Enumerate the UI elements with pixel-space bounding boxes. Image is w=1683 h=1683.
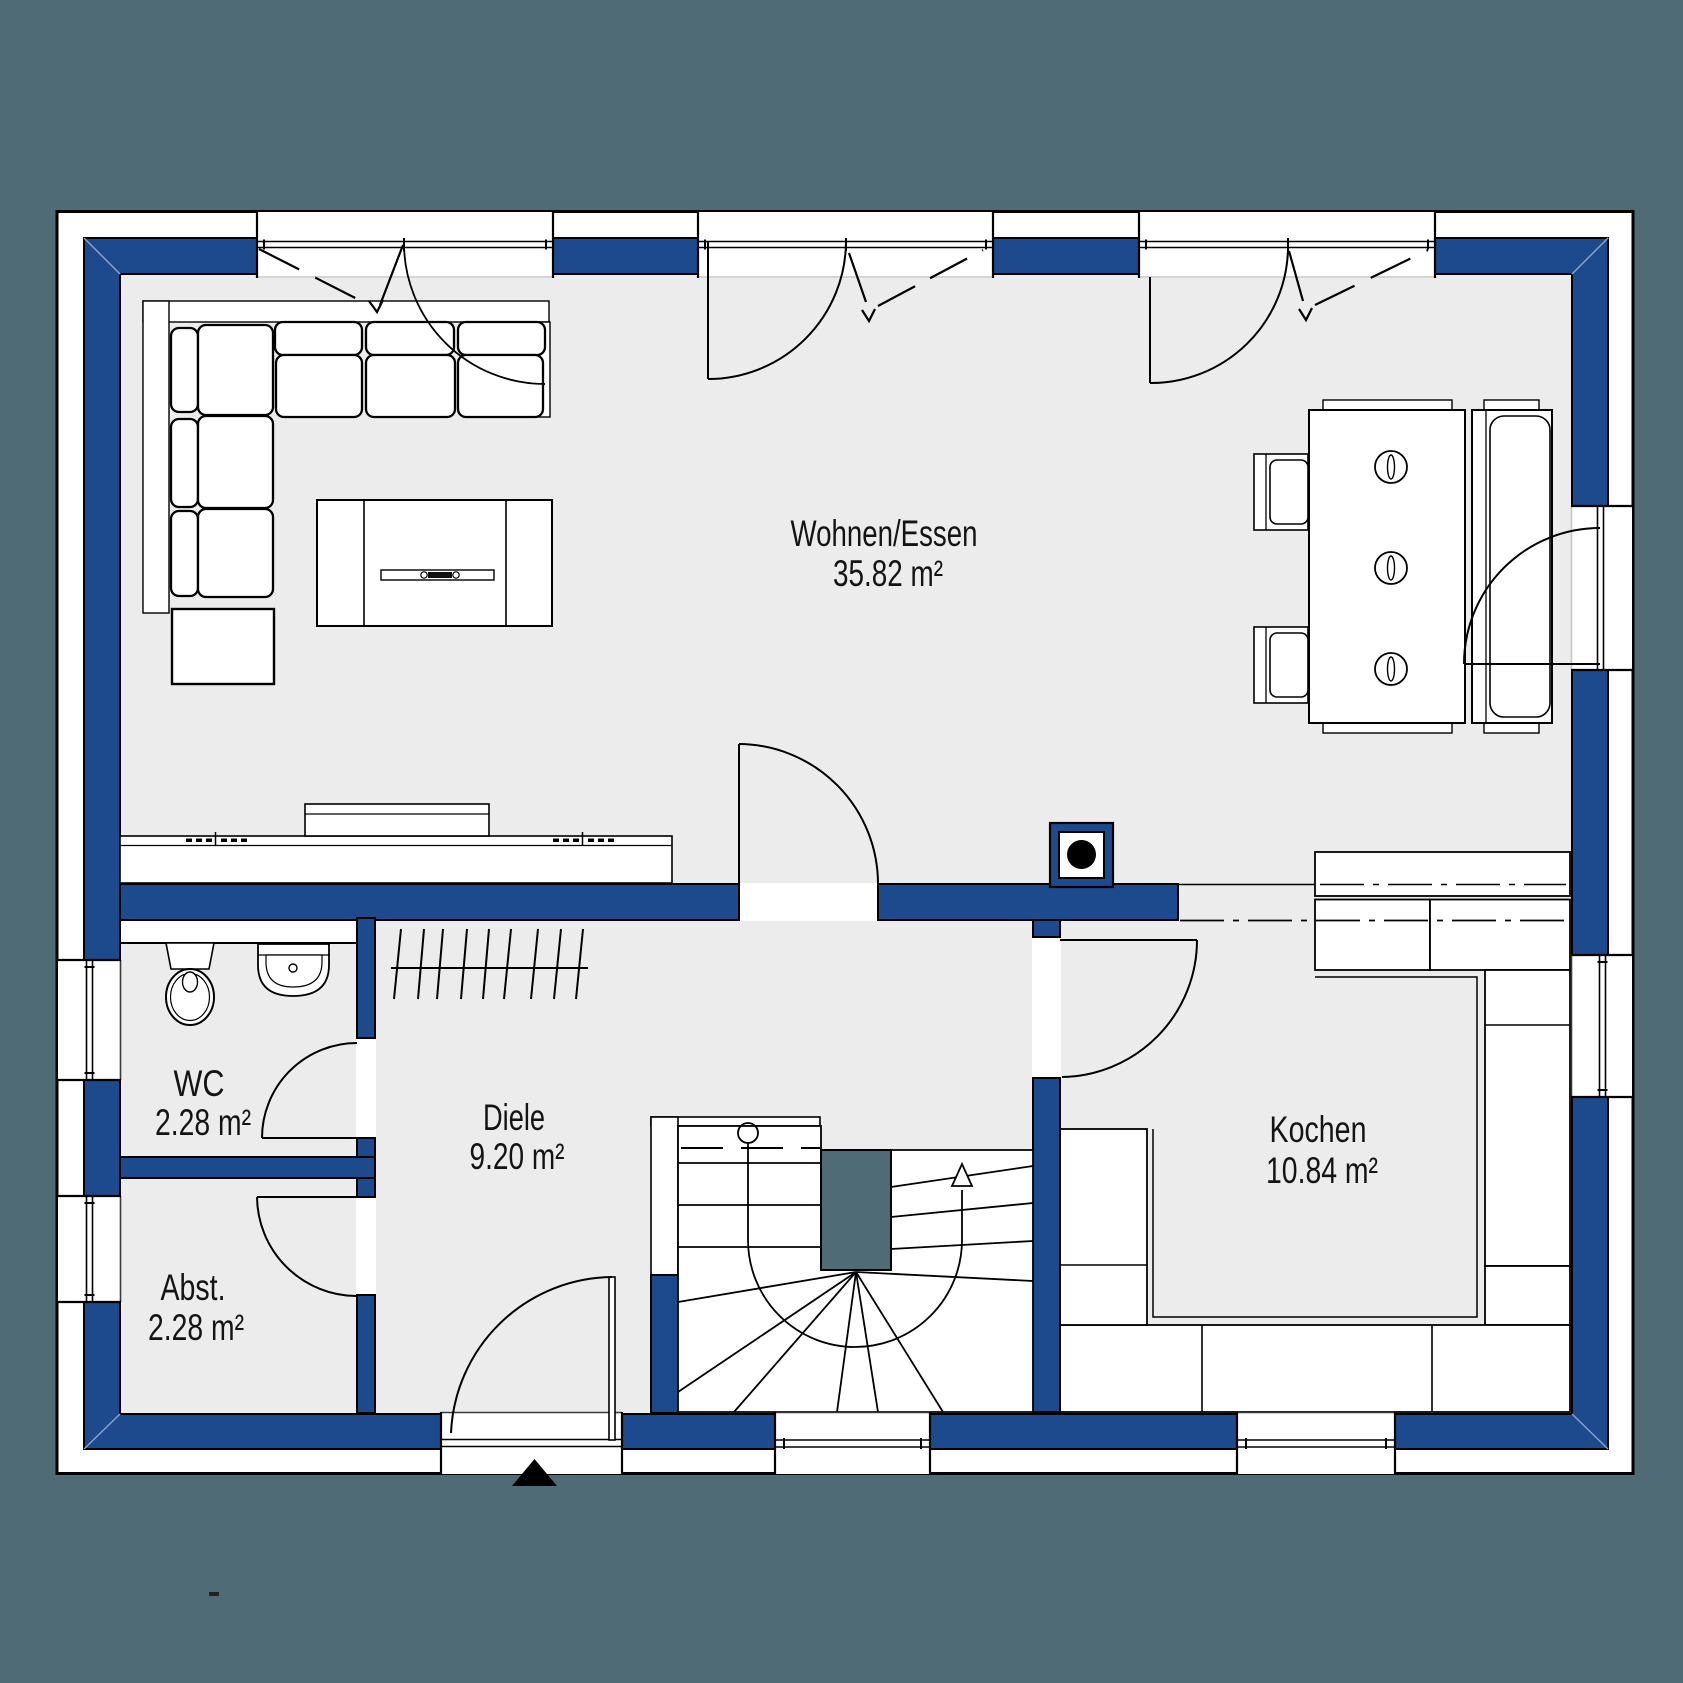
svg-text:9.20 m²: 9.20 m²: [470, 1136, 565, 1177]
svg-text:10.84 m²: 10.84 m²: [1266, 1150, 1378, 1191]
svg-text:2.28 m²: 2.28 m²: [155, 1102, 251, 1143]
svg-text:WC: WC: [174, 1063, 225, 1104]
svg-text:Kochen: Kochen: [1270, 1109, 1367, 1150]
svg-text:35.82 m²: 35.82 m²: [833, 553, 943, 594]
svg-text:Abst.: Abst.: [161, 1267, 226, 1308]
svg-text:Diele: Diele: [483, 1097, 545, 1138]
svg-text:2.28 m²: 2.28 m²: [148, 1307, 244, 1348]
svg-text:Wohnen/Essen: Wohnen/Essen: [791, 513, 978, 554]
